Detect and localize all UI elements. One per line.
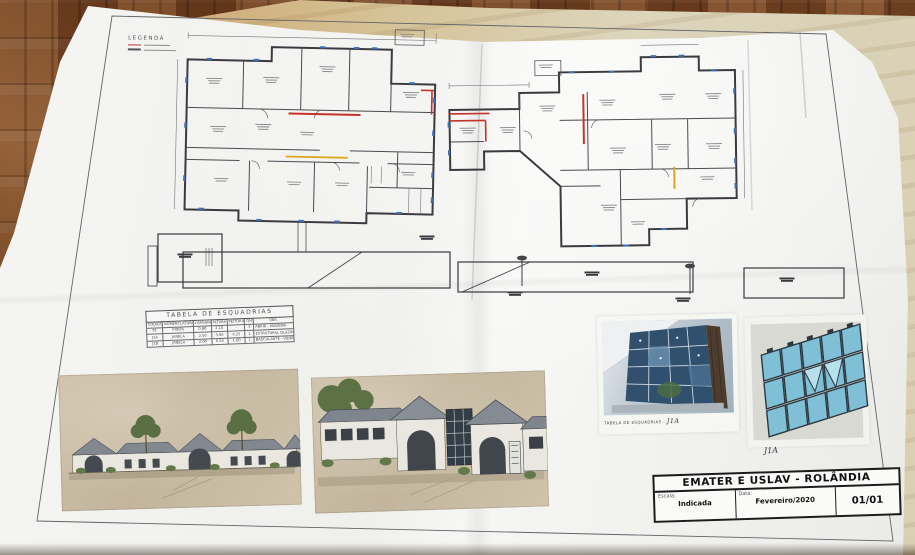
floor-plan-right	[447, 44, 746, 249]
legend-entry-red	[128, 44, 206, 47]
render-caption: J1A	[764, 446, 779, 456]
legend-box: LEGENDA	[128, 35, 206, 51]
glass-facade-photo: TABELA DE ESQUADRIAS - J1A	[597, 313, 740, 434]
sheet-edge-shadow	[0, 543, 915, 555]
facade-photo-image	[602, 319, 734, 416]
dark-line-swatch	[128, 49, 141, 51]
title-block: EMATER E USLAV - ROLÂNDIA Escala: Indica…	[652, 467, 901, 523]
glass-window-render	[744, 314, 869, 447]
esquadrias-table: TABELA DE ESQUADRIAS CÓDIGO NOMENCLATURA…	[145, 305, 294, 348]
elevation-sketch-closeup	[311, 370, 549, 513]
sheet-number-cell: 01/01	[835, 485, 899, 515]
photo-caption: TABELA DE ESQUADRIAS - J1A	[604, 416, 734, 427]
scale-cell: Escala: Indicada	[655, 490, 736, 521]
date-cell: Data: Fevereiro/2020	[735, 487, 836, 518]
sheet-number: 01/01	[852, 494, 884, 506]
elevation-sketch-wide	[58, 369, 302, 512]
floor-plan-left	[174, 25, 436, 224]
red-line-swatch	[128, 44, 141, 46]
annex-outbuildings	[148, 222, 844, 301]
legend-title: LEGENDA	[128, 35, 206, 42]
photo-of-blueprint: LEGENDA TABELA DE ESQUADRIAS CÓDIGO NOME…	[0, 0, 915, 555]
handwritten-code: J1A	[667, 417, 680, 425]
